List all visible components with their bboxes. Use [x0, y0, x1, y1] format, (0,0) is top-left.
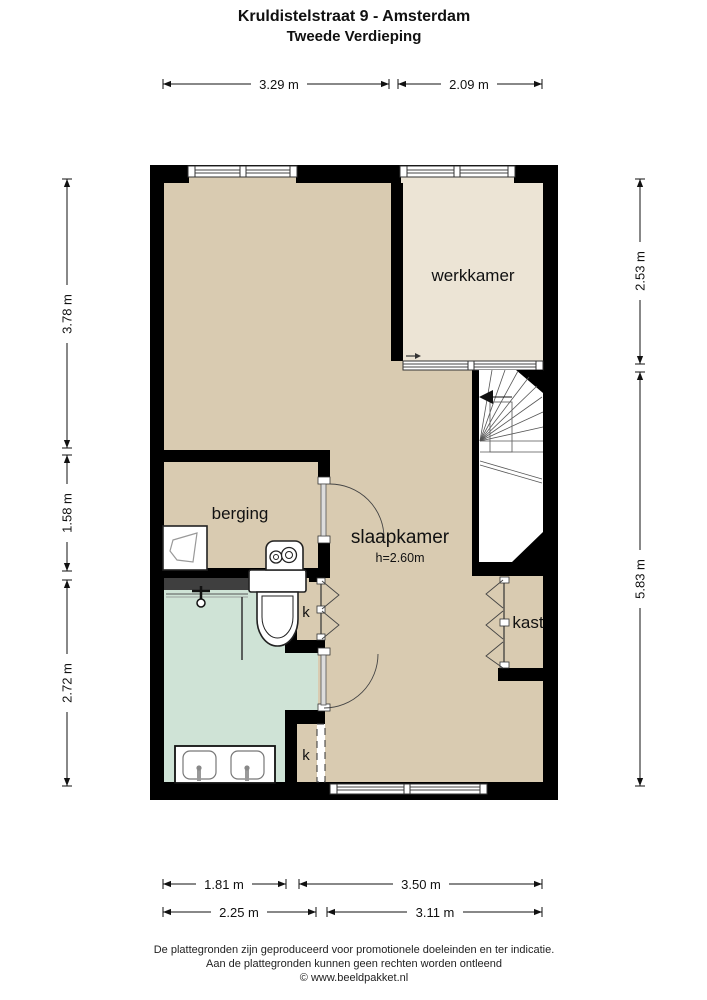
floor-plan-canvas: Kruldistelstraat 9 - Amsterdam Tweede Ve…	[0, 0, 707, 1000]
wall-stub-toilet	[309, 570, 317, 582]
wall-stairs-left	[472, 361, 479, 576]
boiler-dial	[270, 551, 282, 563]
glass-wall-mullion	[468, 361, 474, 370]
window-mullion	[508, 166, 515, 177]
door-leaf	[321, 655, 326, 705]
window-mullion	[330, 784, 337, 794]
sink-counter	[175, 746, 275, 783]
boiler-dial	[282, 548, 297, 563]
dim-top-2: 2.09 m	[398, 76, 542, 92]
dim-bottom-outer-1: 1.81 m	[163, 876, 286, 892]
door-jamb	[318, 477, 330, 484]
door-panel	[500, 577, 509, 583]
window-werkkamer	[400, 166, 515, 183]
door-k-bottom-dashed	[317, 724, 325, 782]
wall-kast-bottom	[498, 668, 543, 681]
dim-label: 5.83 m	[633, 559, 648, 599]
faucet-icon	[244, 765, 249, 781]
footer-disclaimer-2: Aan de plattegronden kunnen geen rechten…	[206, 958, 502, 970]
wall-stairs-bottom	[472, 562, 543, 576]
label-berging: berging	[212, 504, 269, 523]
wall-left	[150, 165, 164, 800]
label-slaapkamer-height: h=2.60m	[376, 551, 425, 565]
toilet-cistern	[249, 570, 306, 592]
floor-plan-page: Kruldistelstraat 9 - Amsterdam Tweede Ve…	[0, 0, 707, 1000]
label-k-top: k	[302, 604, 310, 621]
label-slaapkamer: slaapkamer	[351, 527, 450, 548]
dim-left-3: 2.72 m	[59, 580, 75, 786]
dim-label: 2.53 m	[633, 251, 648, 291]
door-jamb	[318, 648, 330, 655]
dim-label: 3.78 m	[60, 294, 75, 334]
window-mullion	[404, 784, 410, 794]
dim-bottom-inner-1: 2.25 m	[163, 904, 316, 920]
door-jamb	[318, 536, 330, 543]
window-mullion	[400, 166, 407, 177]
dim-label: 2.72 m	[60, 663, 75, 703]
window-bottom	[330, 784, 487, 794]
wall-right	[543, 165, 558, 800]
dim-label: 3.29 m	[259, 77, 299, 92]
dim-left-2: 1.58 m	[59, 455, 75, 571]
window-mullion	[454, 166, 460, 177]
dim-label: 3.50 m	[401, 877, 441, 892]
dim-label: 1.58 m	[60, 493, 75, 533]
footer-disclaimer-1: De plattegronden zijn geproduceerd voor …	[154, 944, 555, 956]
label-werkkamer: werkkamer	[430, 266, 514, 285]
wall-werkkamer-left	[391, 183, 403, 361]
boiler-unit	[266, 541, 303, 570]
dim-label: 3.11 m	[416, 905, 455, 920]
dim-label: 2.09 m	[449, 77, 489, 92]
dim-bottom-outer-2: 3.50 m	[299, 876, 542, 892]
dim-bottom-inner-2: 3.11 m	[327, 904, 542, 920]
wall-k-bottom-left	[285, 710, 297, 782]
door-leaf	[321, 484, 326, 536]
faucet-icon	[196, 765, 201, 781]
plan-title: Kruldistelstraat 9 - Amsterdam	[238, 8, 470, 25]
window-mullion	[290, 166, 297, 177]
dim-top-1: 3.29 m	[163, 76, 389, 92]
window-mullion	[240, 166, 246, 177]
label-kast: kast	[512, 613, 543, 632]
window-top-left	[188, 166, 297, 183]
bathroom-floor-alcove	[285, 653, 318, 710]
door-panel	[500, 619, 509, 626]
window-mullion	[480, 784, 487, 794]
wall-berging-top	[164, 450, 330, 462]
shower-screen	[164, 578, 252, 590]
dim-label: 1.81 m	[204, 877, 244, 892]
label-k-bottom: k	[302, 747, 310, 764]
dim-right-1: 2.53 m	[632, 179, 648, 364]
berging-basin	[163, 526, 207, 570]
dim-label: 2.25 m	[219, 905, 259, 920]
glass-wall-mullion	[536, 361, 543, 370]
dim-right-2: 5.83 m	[632, 372, 648, 786]
footer-copyright: © www.beeldpakket.nl	[300, 972, 408, 984]
dim-left-1: 3.78 m	[59, 179, 75, 448]
stairs	[479, 370, 543, 562]
window-mullion	[188, 166, 195, 177]
door-panel	[317, 578, 325, 584]
plan-subtitle: Tweede Verdieping	[287, 28, 422, 45]
